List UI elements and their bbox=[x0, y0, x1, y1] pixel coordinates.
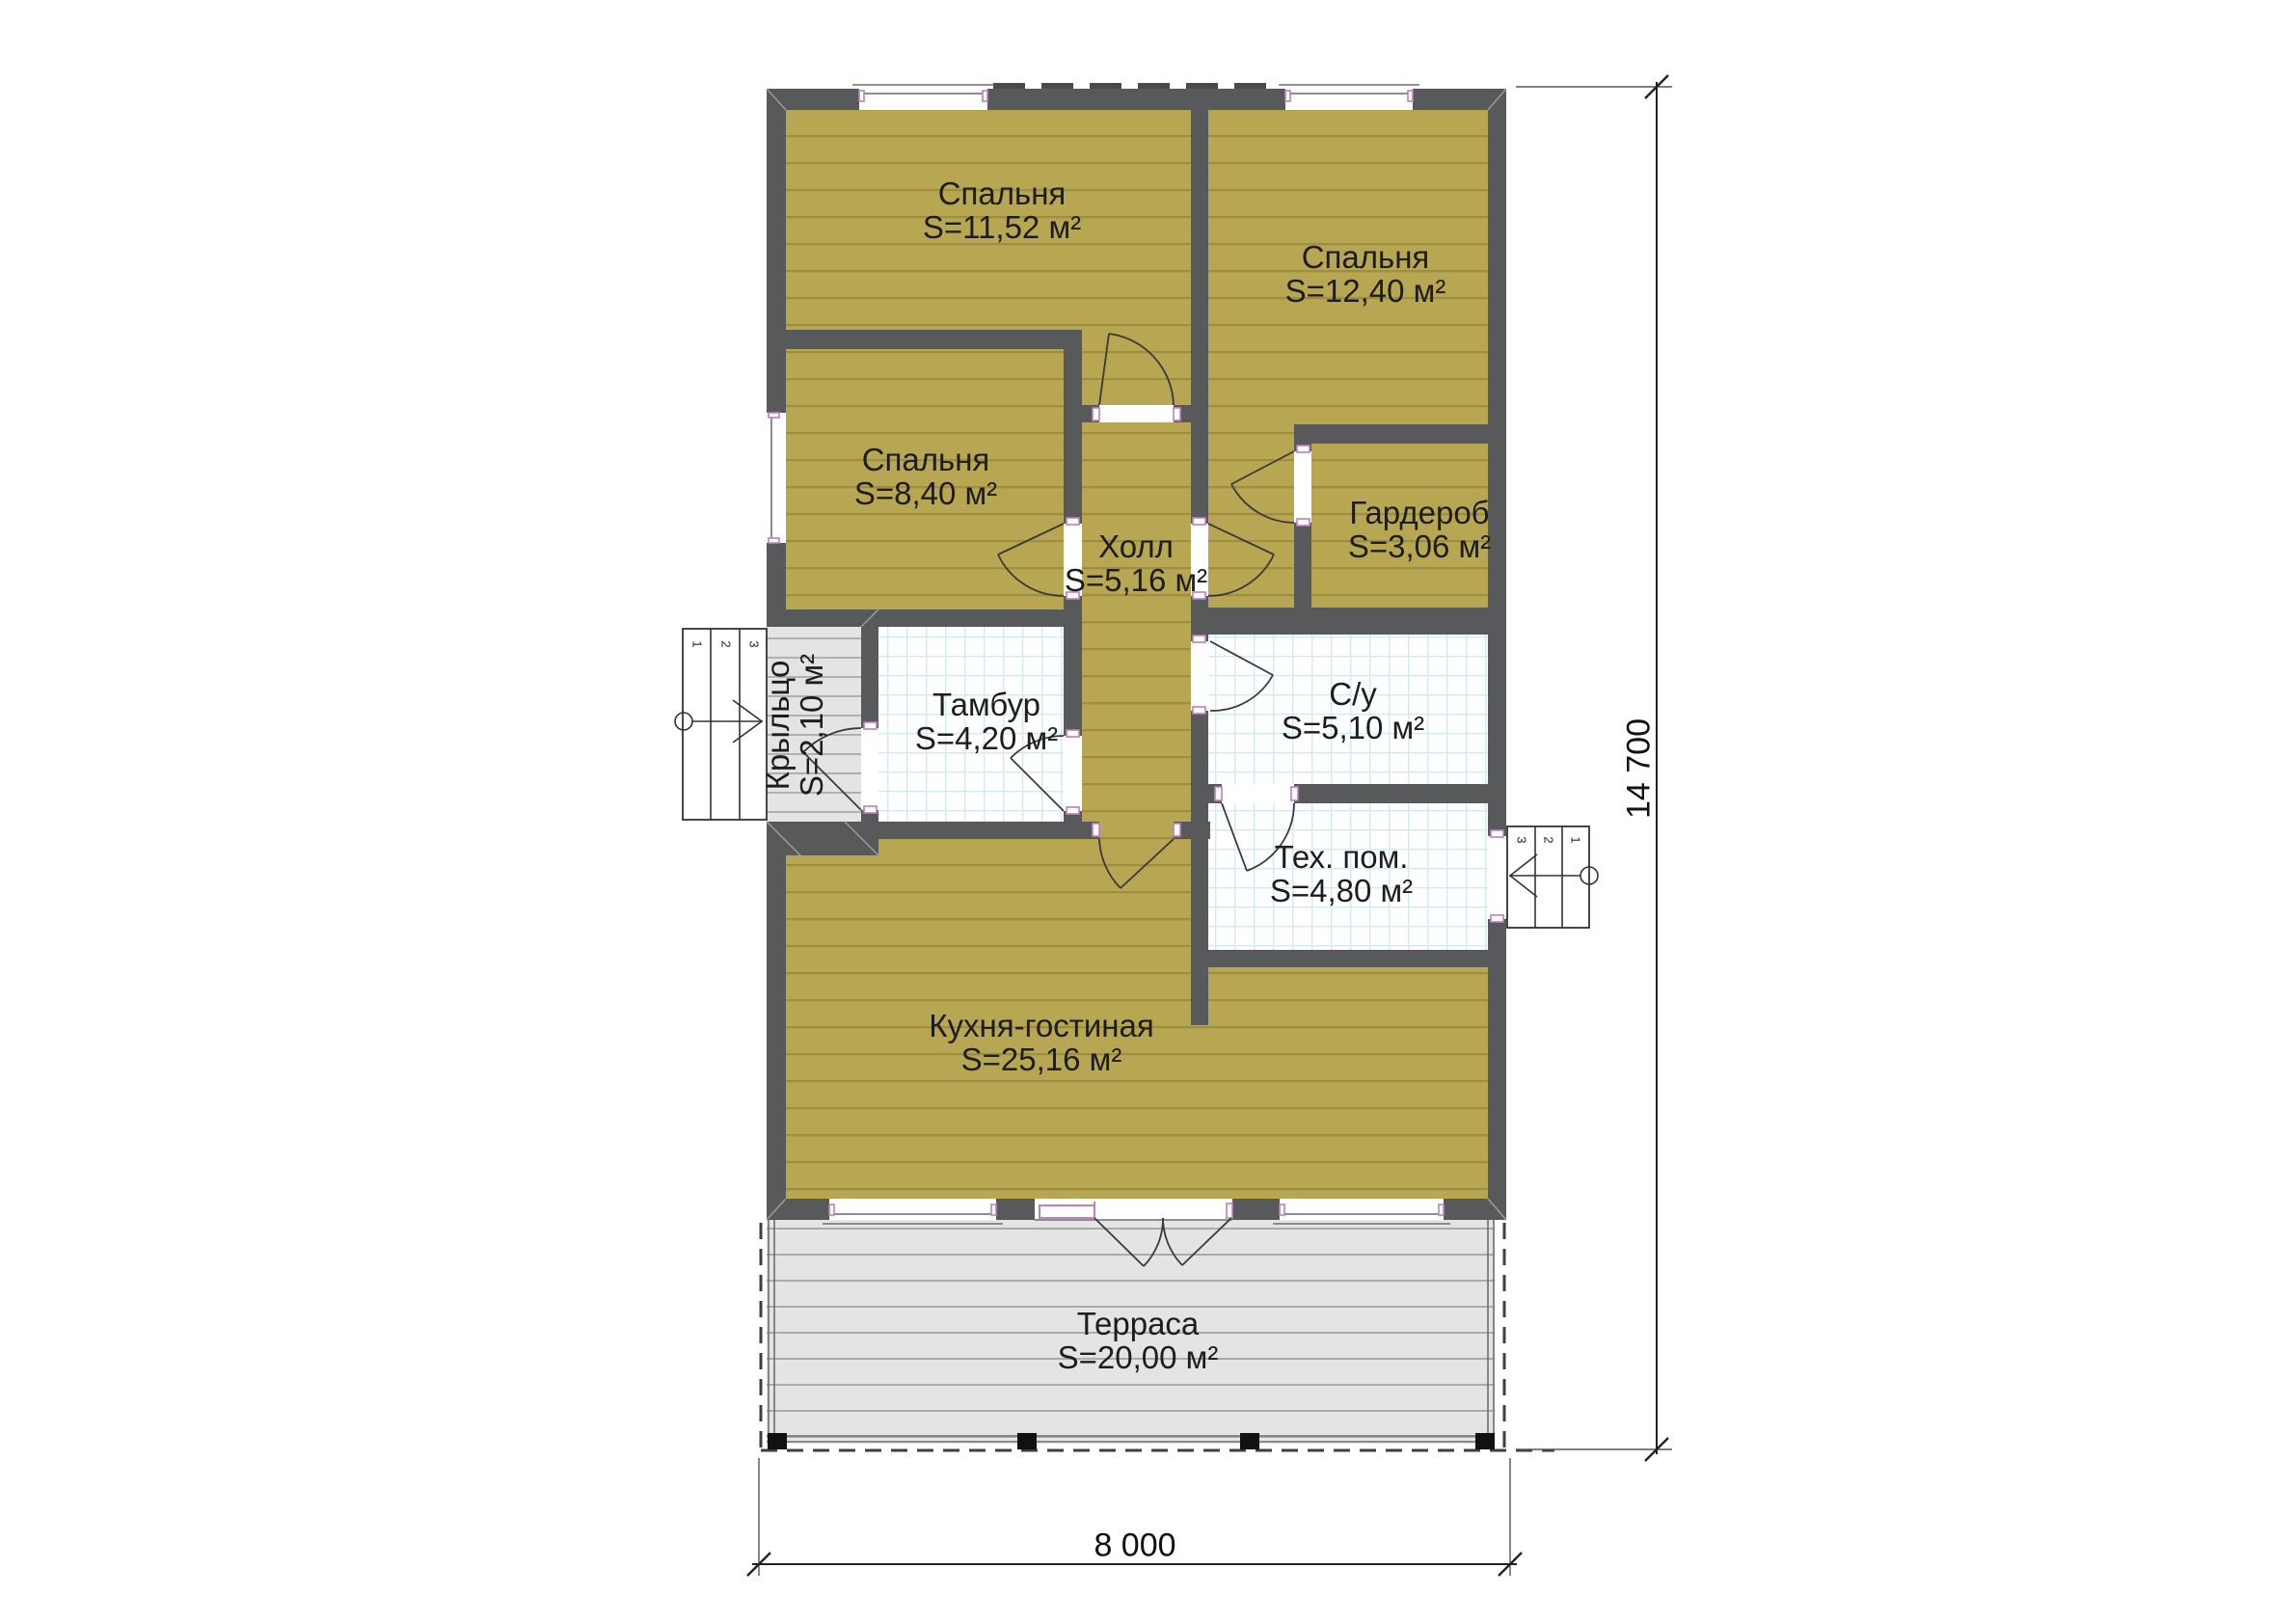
room-name: Тех. пом. bbox=[1270, 840, 1413, 874]
room-area: S=4,20 м² bbox=[915, 721, 1058, 755]
step-number: 3 bbox=[747, 640, 762, 647]
room-area: S=25,16 м² bbox=[929, 1042, 1153, 1076]
step-number: 3 bbox=[1515, 836, 1529, 843]
step-number: 2 bbox=[1542, 836, 1556, 843]
dimension-height-label: 14 700 bbox=[1621, 718, 1659, 819]
room-floor-hall bbox=[1082, 422, 1191, 839]
step-number: 1 bbox=[690, 640, 705, 647]
floor-plan-canvas: Спальня S=11,52 м² Спальня S=12,40 м² Сп… bbox=[0, 0, 2296, 1623]
room-label-kitchen: Кухня-гостиная S=25,16 м² bbox=[929, 1009, 1153, 1076]
room-area: S=8,40 м² bbox=[854, 476, 997, 510]
room-area: S=3,06 м² bbox=[1348, 529, 1491, 563]
step-number: 1 bbox=[1569, 836, 1583, 843]
window-bedroom-1152 bbox=[852, 85, 994, 110]
room-label-bedroom-1240: Спальня S=12,40 м² bbox=[1285, 240, 1446, 308]
room-label-techroom: Тех. пом. S=4,80 м² bbox=[1270, 840, 1413, 907]
window-bedroom-840 bbox=[767, 413, 786, 543]
room-name: Спальня bbox=[923, 176, 1081, 210]
room-area: S=11,52 м² bbox=[923, 210, 1081, 244]
room-area: S=20,00 м² bbox=[1058, 1340, 1219, 1374]
room-label-bedroom-840: Спальня S=8,40 м² bbox=[854, 443, 997, 510]
room-name: Крыльцо bbox=[761, 654, 795, 797]
room-area: S=12,40 м² bbox=[1285, 274, 1446, 308]
room-label-bedroom-1152: Спальня S=11,52 м² bbox=[923, 176, 1081, 244]
step-number: 2 bbox=[719, 640, 734, 647]
room-name: Кухня-гостиная bbox=[929, 1009, 1153, 1042]
room-area: S=5,16 м² bbox=[1065, 563, 1207, 597]
room-name: Холл bbox=[1065, 529, 1207, 563]
room-name: Спальня bbox=[1285, 240, 1446, 274]
room-label-terrace: Терраса S=20,00 м² bbox=[1058, 1307, 1219, 1374]
room-name: Тамбур bbox=[915, 688, 1058, 721]
stairs-left bbox=[675, 629, 767, 820]
room-label-tambour: Тамбур S=4,20 м² bbox=[915, 688, 1058, 755]
room-area: S=5,10 м² bbox=[1282, 711, 1424, 744]
room-name: Терраса bbox=[1058, 1307, 1219, 1340]
room-label-hall: Холл S=5,16 м² bbox=[1065, 529, 1207, 597]
room-label-porch: Крыльцо S=2,10 м² bbox=[761, 654, 828, 797]
room-label-wardrobe: Гардероб S=3,06 м² bbox=[1348, 496, 1491, 563]
window-bedroom-1240 bbox=[1279, 85, 1419, 110]
room-label-bathroom: С/у S=5,10 м² bbox=[1282, 677, 1424, 744]
room-name: Гардероб bbox=[1348, 496, 1491, 529]
room-area: S=4,80 м² bbox=[1270, 874, 1413, 907]
room-name: С/у bbox=[1282, 677, 1424, 711]
dimension-width-label: 8 000 bbox=[1094, 1528, 1175, 1565]
floor-plan-drawing bbox=[0, 0, 2296, 1623]
room-name: Спальня bbox=[854, 443, 997, 476]
room-area: S=2,10 м² bbox=[795, 654, 828, 797]
